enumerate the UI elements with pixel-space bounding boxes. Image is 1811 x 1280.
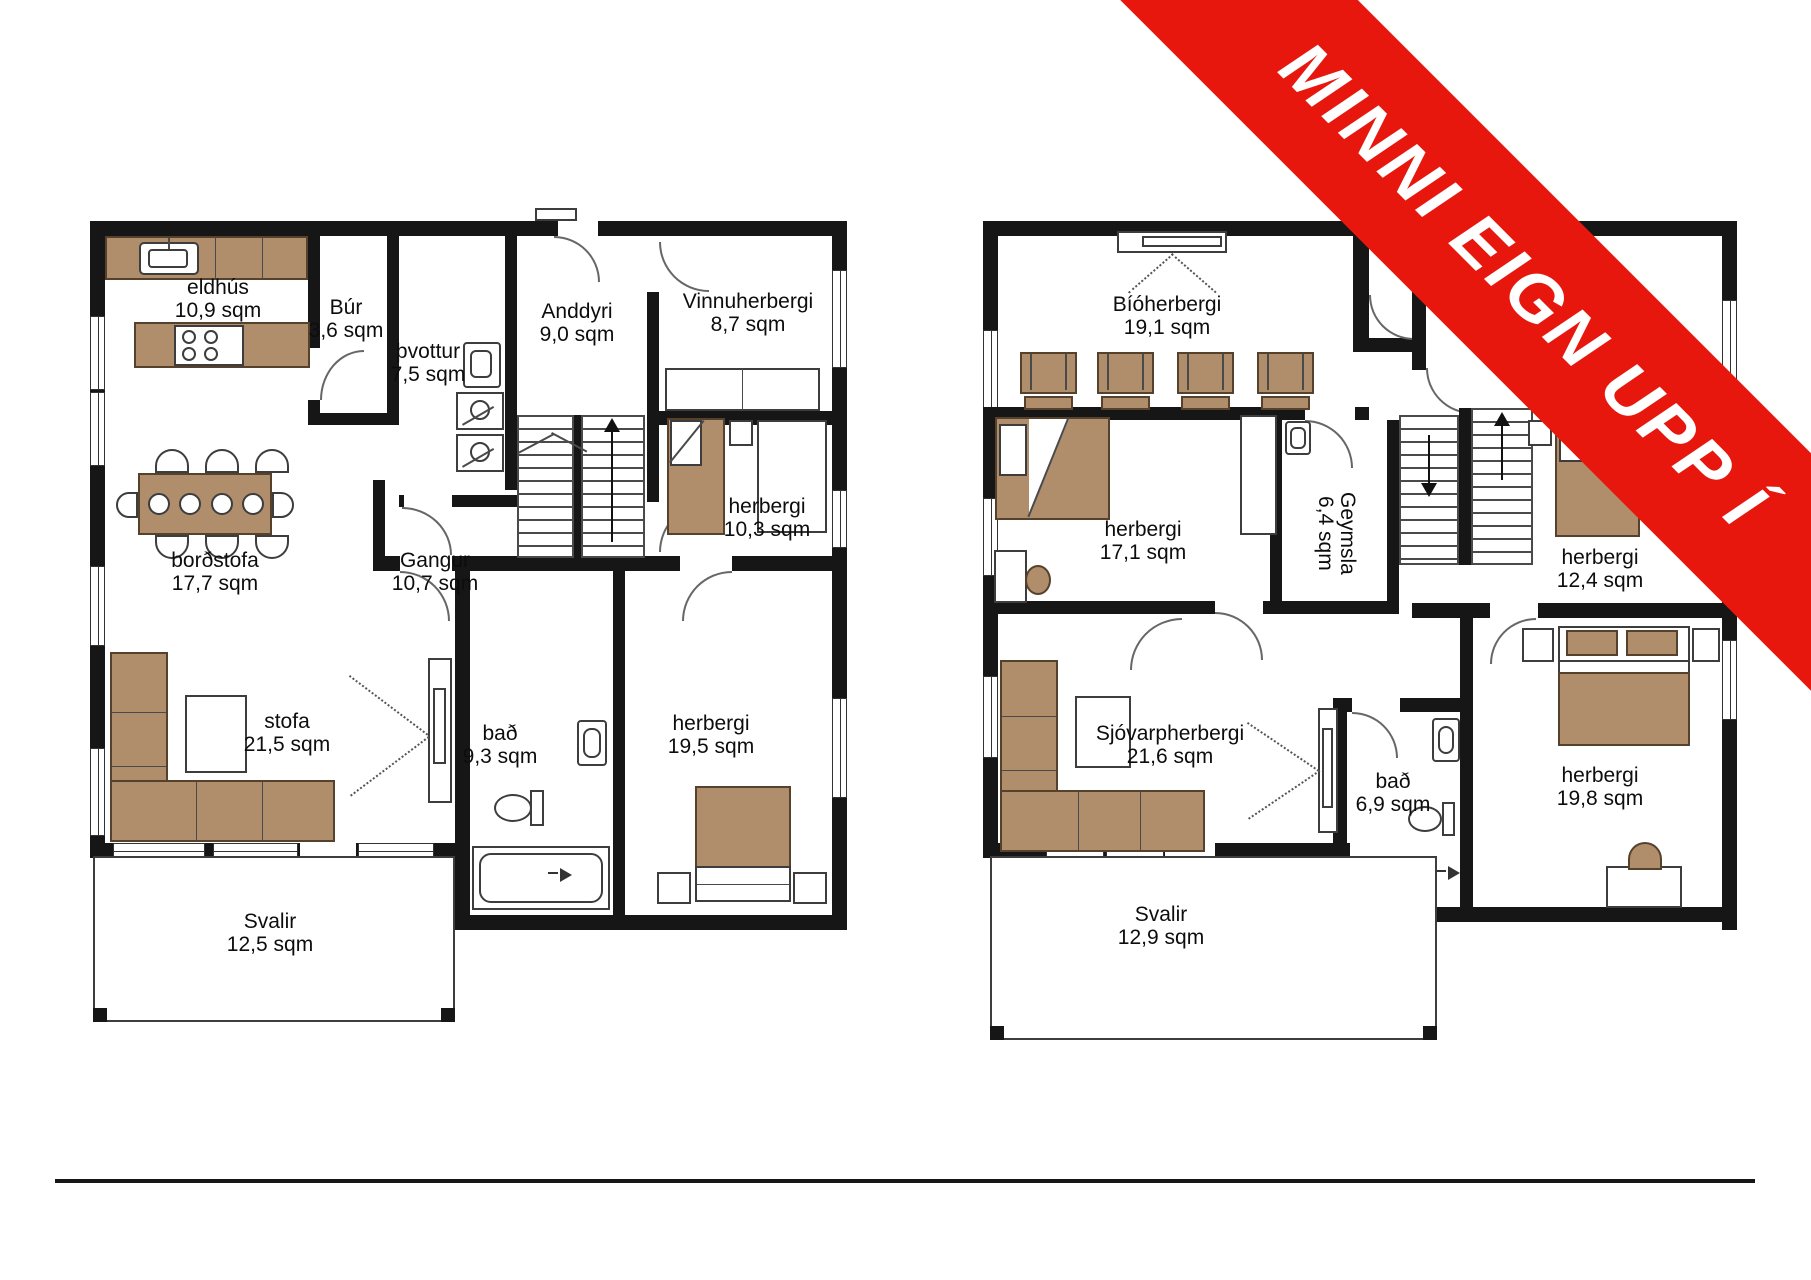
desk bbox=[1606, 866, 1682, 908]
room-label-stofa: stofa21,5 sqm bbox=[244, 710, 330, 756]
tv-icon bbox=[433, 688, 446, 764]
wall bbox=[1387, 420, 1399, 613]
plate bbox=[242, 493, 264, 515]
room-label-geymsla: Geymsla6,4 sqm bbox=[1314, 468, 1358, 598]
cinema-ottoman bbox=[1101, 396, 1150, 410]
tv-icon bbox=[1322, 728, 1333, 808]
kitchen-counter bbox=[105, 236, 308, 280]
door-arc bbox=[1352, 712, 1398, 758]
counter-divider bbox=[262, 236, 263, 280]
wall bbox=[647, 425, 659, 502]
room-label-svalir-12-9: Svalir12,9 sqm bbox=[1118, 903, 1204, 949]
wall bbox=[373, 480, 385, 571]
arrow-down-icon bbox=[1421, 483, 1437, 497]
wall bbox=[1353, 236, 1369, 352]
sofa-seam bbox=[112, 712, 166, 713]
sofa-seam bbox=[262, 782, 263, 840]
shower-drain-icon bbox=[1448, 866, 1460, 880]
seat-arm bbox=[1030, 354, 1032, 390]
wall bbox=[452, 495, 517, 507]
chair bbox=[205, 449, 239, 473]
shower-drain-line bbox=[1436, 870, 1446, 872]
window bbox=[832, 490, 847, 548]
sink-basin bbox=[1438, 726, 1454, 754]
stairs-arrow-line bbox=[611, 430, 613, 542]
room-label-herbergi-12-4: herbergi12,4 sqm bbox=[1557, 546, 1643, 592]
room-label-anddyri: Anddyri9,0 sqm bbox=[540, 300, 615, 346]
window bbox=[983, 676, 998, 758]
sofa-seam bbox=[112, 766, 166, 767]
shower-drain-icon bbox=[560, 868, 572, 882]
wall bbox=[732, 556, 832, 571]
wall bbox=[574, 415, 581, 558]
wall bbox=[452, 556, 680, 571]
cinema-seat bbox=[1097, 352, 1154, 394]
window bbox=[832, 698, 847, 798]
door-arc bbox=[1305, 420, 1353, 468]
door-arc bbox=[659, 242, 709, 292]
closet bbox=[1240, 415, 1277, 535]
seat-arm bbox=[1222, 354, 1224, 390]
wall bbox=[1459, 408, 1471, 565]
door-gap bbox=[558, 221, 598, 236]
wall bbox=[1353, 338, 1412, 352]
burner-icon bbox=[204, 330, 218, 344]
plate bbox=[211, 493, 233, 515]
wall bbox=[1263, 601, 1399, 614]
wall bbox=[1412, 603, 1490, 618]
room-label-herbergi-19-8: herbergi19,8 sqm bbox=[1557, 764, 1643, 810]
footer-divider bbox=[55, 1179, 1755, 1183]
sofa bbox=[110, 780, 335, 842]
seat-arm bbox=[1302, 354, 1304, 390]
closet-divider bbox=[742, 368, 743, 411]
seat-arm bbox=[1107, 354, 1109, 390]
projection-line bbox=[1128, 253, 1174, 293]
seat-arm bbox=[1065, 354, 1067, 390]
wall bbox=[90, 221, 847, 236]
chair bbox=[1025, 565, 1051, 595]
desk bbox=[994, 550, 1027, 603]
stairs-flight bbox=[581, 415, 645, 558]
room-label-vinnuherbergi: Vinnuherbergi8,7 sqm bbox=[683, 290, 813, 336]
toilet-tank bbox=[530, 790, 544, 826]
sink-basin bbox=[148, 249, 188, 268]
cinema-seat bbox=[1257, 352, 1314, 394]
coffee-table bbox=[185, 695, 247, 773]
floorplan-canvas: eldhús10,9 sqm Búr3,6 sqm þvottur7,5 sqm… bbox=[0, 0, 1811, 1280]
room-label-bordstofa: borðstofa17,7 sqm bbox=[171, 549, 259, 595]
door-arc bbox=[554, 236, 600, 282]
seat-arm bbox=[1142, 354, 1144, 390]
room-label-bur: Búr3,6 sqm bbox=[309, 296, 384, 342]
seat-arm bbox=[1187, 354, 1189, 390]
balcony bbox=[990, 856, 1437, 1040]
pillow bbox=[1626, 630, 1678, 656]
nightstand bbox=[1692, 628, 1720, 662]
room-label-bad-9-3: bað9,3 sqm bbox=[463, 722, 538, 768]
room-label-herbergi-17-1: herbergi17,1 sqm bbox=[1100, 518, 1186, 564]
nightstand bbox=[1522, 628, 1554, 662]
room-label-eldhus: eldhús10,9 sqm bbox=[175, 276, 261, 322]
door-arc bbox=[682, 571, 732, 621]
projection-line bbox=[1171, 253, 1217, 293]
entry-step bbox=[535, 208, 577, 221]
cinema-ottoman bbox=[1181, 396, 1230, 410]
chair bbox=[155, 449, 189, 473]
window bbox=[832, 270, 847, 368]
room-label-gangur: Gangur10,7 sqm bbox=[392, 549, 478, 595]
door-arc bbox=[320, 350, 364, 400]
chair bbox=[272, 492, 294, 518]
sofa-seam bbox=[1140, 792, 1141, 850]
room-label-sjovarpherbergi: Sjóvarpherbergi21,6 sqm bbox=[1096, 722, 1244, 768]
wall bbox=[93, 1008, 107, 1022]
sofa-seam bbox=[1002, 716, 1056, 717]
door-arc bbox=[1369, 295, 1414, 340]
wall bbox=[1460, 618, 1473, 922]
sofa bbox=[1000, 790, 1205, 852]
wall bbox=[1538, 603, 1737, 618]
plate bbox=[148, 493, 170, 515]
projector-screen-inner bbox=[1142, 236, 1222, 247]
room-label-herbergi-10-3: herbergi10,3 sqm bbox=[724, 495, 810, 541]
bed bbox=[695, 786, 791, 868]
toilet-icon bbox=[494, 794, 532, 822]
sofa-seam bbox=[1002, 770, 1056, 771]
wall bbox=[441, 1008, 455, 1022]
chair bbox=[255, 535, 289, 559]
room-label-thvottur: þvottur7,5 sqm bbox=[391, 340, 466, 386]
door-arc bbox=[1215, 612, 1263, 660]
stairs-arrow-line bbox=[1428, 435, 1430, 483]
sink-basin bbox=[1290, 427, 1306, 449]
counter-divider bbox=[215, 236, 216, 280]
sofa-seam bbox=[1078, 792, 1079, 850]
nightstand bbox=[657, 872, 691, 904]
arrow-up-icon bbox=[604, 418, 620, 432]
window bbox=[90, 748, 105, 836]
burner-icon bbox=[204, 347, 218, 361]
wall bbox=[1355, 407, 1369, 420]
tv-view-line bbox=[1248, 770, 1320, 820]
cinema-seat bbox=[1177, 352, 1234, 394]
burner-icon bbox=[182, 330, 196, 344]
chair bbox=[116, 492, 138, 518]
shower-drain-line bbox=[548, 872, 558, 874]
wall bbox=[308, 400, 320, 413]
door-arc bbox=[1130, 618, 1182, 670]
bed bbox=[1558, 672, 1690, 746]
wall bbox=[613, 571, 625, 915]
burner-icon bbox=[182, 347, 196, 361]
faucet bbox=[168, 238, 170, 249]
window bbox=[983, 330, 998, 410]
bed-foot-line bbox=[697, 884, 789, 885]
cinema-ottoman bbox=[1024, 396, 1073, 410]
room-label-svalir-12-5: Svalir12,5 sqm bbox=[227, 910, 313, 956]
tv-view-line bbox=[350, 736, 429, 797]
cinema-seat bbox=[1020, 352, 1077, 394]
nightstand bbox=[729, 420, 753, 446]
chair bbox=[255, 449, 289, 473]
seat-arm bbox=[1267, 354, 1269, 390]
arrow-up-icon bbox=[1494, 412, 1510, 426]
chair bbox=[1628, 842, 1662, 870]
wall bbox=[990, 1026, 1004, 1040]
wall bbox=[399, 495, 404, 507]
door-arc bbox=[402, 507, 452, 555]
nightstand bbox=[793, 872, 827, 904]
pillow bbox=[999, 424, 1027, 476]
sofa-seam bbox=[196, 782, 197, 840]
tv-view-line bbox=[349, 675, 428, 736]
tv-view-line bbox=[1247, 722, 1319, 772]
wall bbox=[647, 292, 659, 425]
stairs-arrow-line bbox=[1501, 425, 1503, 480]
sink-basin bbox=[583, 728, 601, 758]
window bbox=[1722, 640, 1737, 720]
wall bbox=[387, 236, 399, 413]
sink-basin bbox=[470, 350, 492, 378]
wall bbox=[1423, 1026, 1437, 1040]
wall bbox=[455, 915, 847, 930]
wall bbox=[505, 236, 517, 490]
room-label-bad-6-9: bað6,9 sqm bbox=[1356, 770, 1431, 816]
room-label-herbergi-19-5: herbergi19,5 sqm bbox=[668, 712, 754, 758]
window bbox=[90, 566, 105, 646]
cinema-ottoman bbox=[1261, 396, 1310, 410]
bathtub-basin bbox=[479, 853, 603, 903]
window bbox=[90, 392, 105, 466]
wall bbox=[308, 413, 399, 425]
room-label-bioherbergi: Bíóherbergi19,1 sqm bbox=[1113, 293, 1222, 339]
window bbox=[90, 316, 105, 390]
plate bbox=[179, 493, 201, 515]
toilet-tank bbox=[1442, 802, 1455, 836]
pillow bbox=[1566, 630, 1618, 656]
